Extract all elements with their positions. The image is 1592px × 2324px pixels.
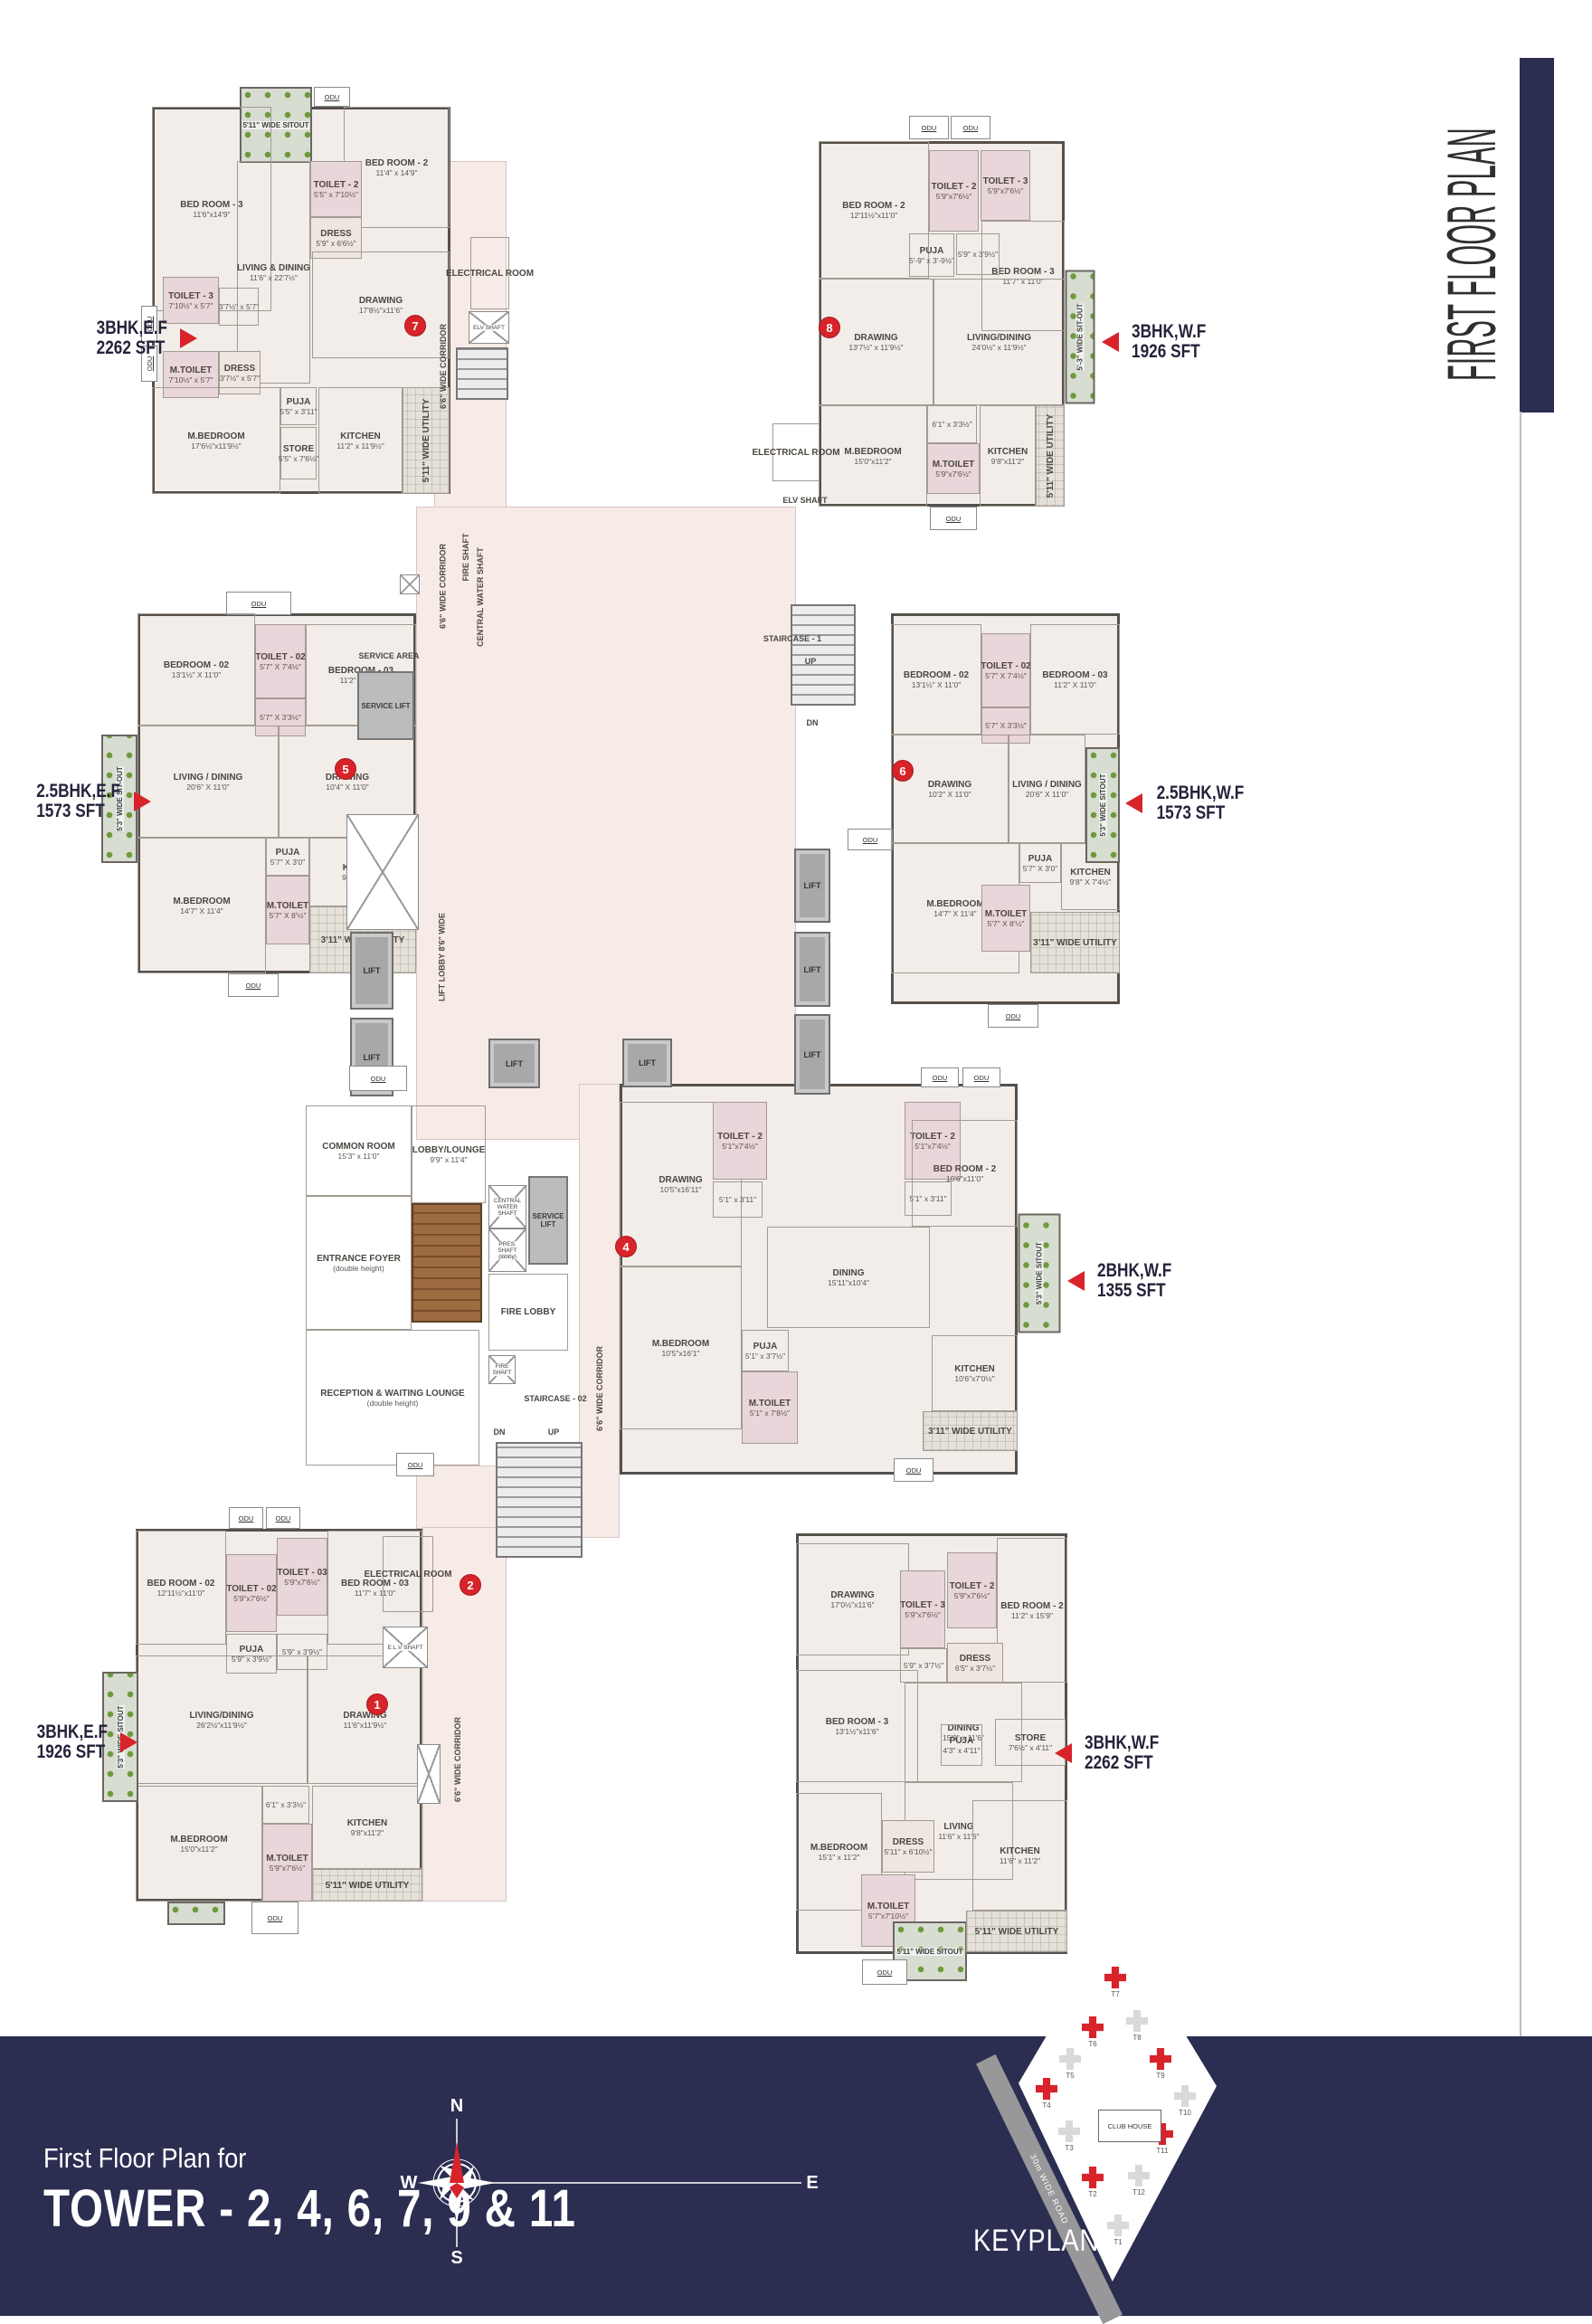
shaft-pres-shaft-lobby: PRES. SHAFT (lobby): [488, 1228, 526, 1272]
odu-odu: ODU: [962, 1067, 1000, 1087]
room-toilet-2: TOILET - 25'1"x7'4½": [713, 1102, 767, 1180]
keyplan-tower-label-t6: T6: [1079, 2040, 1106, 2048]
shaft-area: [400, 574, 420, 594]
unit-arrow-right: [134, 792, 151, 811]
lift-lift: LIFT: [488, 1039, 540, 1088]
unit-arrow-right: [120, 1732, 137, 1752]
shaft-e-l-v-shaft: E.L.V SHAFT: [383, 1627, 428, 1668]
lift-lift: LIFT: [794, 849, 830, 923]
odu-odu: ODU: [951, 116, 990, 139]
keyplan-tower-label-t11: T11: [1149, 2147, 1176, 2155]
tag-3bhk-e-f: 3BHK,E.F1926 SFT: [29, 1722, 101, 1762]
room-drawing: DRAWING13'7½" x 11'9½": [819, 279, 933, 405]
room-living-dining: LIVING/DINING26'2½"x11'9½": [136, 1655, 308, 1784]
unit-arrow-left: [1067, 1271, 1085, 1291]
room-kitchen: KITCHEN11'2" x 11'9½": [318, 387, 403, 494]
stairsg-area: [791, 604, 856, 706]
tag-2-5bhk-w-f: 2.5BHK,W.F1573 SFT: [1125, 783, 1207, 823]
room-6-1-x-3-3: 6'1" x 3'3½": [927, 405, 977, 443]
shaft-fire-shaft: FIRE SHAFT: [488, 1355, 516, 1384]
keyplan-tower-label-t9: T9: [1147, 2072, 1174, 2080]
tag-3bhk-e-f: 3BHK,E.F2262 SFT: [89, 318, 154, 358]
compass-w: W: [401, 2173, 418, 2193]
room-3-11-wide-utility: 3'11" WIDE UTILITY: [923, 1411, 1018, 1451]
lbl-up: UP: [800, 657, 821, 666]
circle-7: 7: [404, 315, 426, 337]
room-toilet-03: TOILET - 035'9"x7'6½": [277, 1538, 327, 1616]
room-living-dining: LIVING/DINING24'0½" x 11'9½": [933, 279, 1065, 405]
room-lobby-lounge: LOBBY/LOUNGE9'9" x 11'4": [412, 1105, 486, 1203]
room-bed-room-2: BED ROOM - 210'6"x11'0": [912, 1120, 1018, 1227]
room-electrical-room: ELECTRICAL ROOM: [772, 423, 820, 481]
room-toilet-2: TOILET - 25'5" x 7'10½": [310, 161, 362, 217]
tag-2bhk-w-f: 2BHK,W.F1355 SFT: [1067, 1263, 1140, 1299]
odu-odu: ODU: [930, 507, 977, 530]
room-puja: PUJA5'1" x 3'7½": [742, 1330, 789, 1371]
room-toilet-02: TOILET - 025'7" X 7'4½": [255, 624, 306, 698]
corridor-area: [416, 507, 796, 1140]
room-m-bedroom: M.BEDROOM14'7" X 11'4": [137, 838, 266, 973]
room-drawing: DRAWING10'2" X 11'0": [891, 735, 1009, 843]
room-m-bedroom: M.BEDROOM15'0"x11'2": [136, 1786, 262, 1902]
room-puja: PUJA5'5" x 3'11": [280, 387, 317, 425]
keyplan-tower-label-t7: T7: [1102, 1990, 1129, 1998]
odu-odu: ODU: [229, 1507, 263, 1529]
room-bed-room-2: BED ROOM - 211'2" x 15'9": [997, 1538, 1067, 1683]
room-toilet-2: TOILET - 25'9"x7'6½": [947, 1552, 997, 1628]
title-band-bar: [1520, 58, 1554, 413]
room-kitchen: KITCHEN9'8"x11'2": [980, 405, 1036, 507]
compass-rose: N W S E: [398, 2099, 823, 2266]
lbl-service-area: SERVICE AREA: [355, 650, 423, 662]
footer-subtitle: First Floor Plan for: [43, 2142, 246, 2175]
lbl-dn: DN: [801, 718, 823, 727]
compass-n: N: [450, 2099, 463, 2116]
odu-odu: ODU: [228, 973, 279, 997]
circle-2: 2: [460, 1574, 481, 1596]
room-kitchen: KITCHEN11'6" x 11'2": [972, 1800, 1067, 1911]
sitout-area: [167, 1902, 225, 1925]
corridor-area: [579, 1084, 620, 1538]
keyplan-tower-label-t10: T10: [1171, 2109, 1199, 2117]
compass-s: S: [450, 2248, 462, 2266]
lbl-6-6-wide-corridor: 6'6" WIDE CORRIDOR: [432, 289, 454, 443]
room-toilet-3: TOILET - 37'10½" x 5'7": [163, 277, 219, 324]
room-toilet-02: TOILET - 025'9"x7'6½": [226, 1554, 277, 1632]
unit-arrow-left: [1055, 1743, 1072, 1763]
servicelift-service-lift: SERVICE LIFT: [357, 671, 414, 740]
room-reception-waiting-lounge: RECEPTION & WAITING LOUNGE(double height…: [306, 1330, 479, 1466]
keyplan-tower-label-t5: T5: [1057, 2072, 1084, 2080]
room-electrical-room: ELECTRICAL ROOM: [383, 1536, 433, 1612]
circle-8: 8: [819, 317, 840, 338]
room-drawing: DRAWING17'0½"x11'6": [796, 1543, 909, 1655]
circle-5: 5: [335, 758, 356, 780]
keyplan-tower-label-t4: T4: [1033, 2101, 1060, 2110]
circle-4: 4: [615, 1236, 637, 1257]
unit-arrow-left: [1125, 793, 1142, 813]
servicelift-service-lift: SERVICE LIFT: [528, 1176, 568, 1265]
room-5-11-wide-utility: 5'11" WIDE UTILITY: [312, 1869, 422, 1902]
lbl-6-6-wide-corridor: 6'6" WIDE CORRIDOR: [590, 1321, 610, 1456]
odu-odu: ODU: [988, 1004, 1038, 1028]
room-m-toilet: M.TOILET5'7" X 8'½": [266, 876, 309, 944]
room-entrance-foyer: ENTRANCE FOYER(double height): [306, 1196, 412, 1330]
room-drawing: DRAWING17'8½"x11'6": [312, 251, 450, 358]
room-kitchen: KITCHEN9'8"x11'2": [312, 1786, 422, 1869]
room-drawing: DRAWING11'6"x11'9½": [308, 1655, 422, 1784]
room-puja: PUJA5'7" X 3'0": [266, 838, 309, 876]
odu-odu: ODU: [349, 1066, 407, 1091]
odu-odu: ODU: [921, 1067, 959, 1087]
odu-odu: ODU: [909, 116, 949, 139]
lbl-up: UP: [543, 1428, 564, 1437]
room-dining: DINING15'11"x10'4": [767, 1227, 930, 1328]
odu-odu: ODU: [266, 1507, 300, 1529]
keyplan-tower-label-t8: T8: [1123, 2034, 1151, 2042]
lift-lift: LIFT: [622, 1039, 672, 1087]
lbl-central-water-shaft: CENTRAL WATER SHAFT: [474, 561, 487, 633]
lift-lift: LIFT: [350, 932, 393, 1010]
keyplan-tower-label-t2: T2: [1079, 2190, 1106, 2198]
room-common-room: COMMON ROOM15'3" x 11'0": [306, 1105, 412, 1196]
room-toilet-02: TOILET - 025'7" X 7'4½": [981, 633, 1030, 707]
room-store: STORE5'5" x 7'6½": [280, 427, 317, 479]
room-toilet-2: TOILET - 25'9"x7'6½": [929, 150, 979, 232]
shaft-central-water-shaft: CENTRAL WATER SHAFT: [488, 1185, 526, 1228]
odu-odu: ODU: [894, 1458, 933, 1482]
room-dress: DRESS6'5" x 3'7½": [947, 1643, 1003, 1683]
room-toilet-3: TOILET - 35'9"x7'6½": [900, 1570, 945, 1648]
room-toilet-3: TOILET - 35'9"x7'6½": [981, 150, 1030, 221]
room-kitchen: KITCHEN10'6"x7'0½": [932, 1335, 1018, 1411]
compass-e: E: [806, 2173, 818, 2193]
lbl-6-6-wide-corridor: 6'6" WIDE CORRIDOR: [449, 1701, 467, 1818]
room-5-1-x-3-11: 5'1" x 3'11": [713, 1181, 763, 1218]
room-m-toilet: M.TOILET5'9"x7'6½": [262, 1824, 312, 1902]
sitout-5-3-wide-sitout: 5'3" WIDE SITOUT: [1085, 747, 1120, 863]
room-bed-room-02: BED ROOM - 0212'11½"x11'0": [136, 1531, 226, 1645]
lbl-staircase-02: STAIRCASE - 02: [519, 1393, 592, 1404]
room-3-7-x-5-7: 3'7½" x 5'7": [219, 288, 259, 326]
keyplan-club-house: CLUB HOUSE: [1098, 2110, 1161, 2142]
room-m-bedroom: M.BEDROOM17'6½"x11'9½": [152, 387, 280, 494]
shaft-area: [346, 814, 419, 930]
lbl-6-6-wide-corridor: 6'6" WIDE CORRIDOR: [433, 529, 451, 642]
room-bed-room-3: BED ROOM - 313'1½"x11'6": [796, 1670, 918, 1782]
odu-odu: ODU: [251, 1902, 298, 1934]
room-m-toilet: M.TOILET5'7" X 8'½": [981, 885, 1030, 952]
room-bedroom-03: BEDROOM - 0311'2" X 11'0": [1030, 624, 1120, 735]
room-dress: DRESS5'11" x 6'10½": [882, 1820, 934, 1873]
tag-3bhk-w-f: 3BHK,W.F1926 SFT: [1102, 322, 1176, 362]
stairsg-area: [496, 1442, 583, 1558]
room-puja: PUJA5'-9" x 3'-9½": [909, 233, 954, 277]
unit-arrow-right: [180, 328, 197, 348]
page-title-vertical: FIRST FLOOR PLAN: [1436, 122, 1508, 387]
keyplan-tower-label-t3: T3: [1056, 2144, 1083, 2152]
lbl-dn: DN: [488, 1428, 510, 1437]
right-separator-line: [1520, 412, 1521, 2036]
room-m-toilet: M.TOILET5'1" x 7'8½": [742, 1371, 798, 1444]
room-bedroom-02: BEDROOM - 0213'1½" X 11'0": [137, 613, 255, 726]
room-living-dining: LIVING / DINING20'6" X 11'0": [1009, 735, 1085, 843]
shaft-area: [417, 1744, 441, 1804]
room-bedroom-02: BEDROOM - 0213'1½" X 11'0": [891, 624, 981, 735]
room-puja: PUJA5'7" X 3'0": [1019, 843, 1061, 883]
stairsg-area: [456, 347, 508, 400]
keyplan-title: KEYPLAN: [973, 2224, 1099, 2259]
odu-odu: ODU: [862, 1959, 907, 1985]
room-living-dining: LIVING / DINING20'6" X 11'0": [137, 726, 279, 838]
room-3-11-wide-utility: 3'11" WIDE UTILITY: [1030, 912, 1120, 973]
room-fire-lobby: FIRE LOBBY: [488, 1274, 568, 1351]
room-m-toilet: M.TOILET5'9"x7'6½": [927, 443, 980, 494]
room-m-bedroom: M.BEDROOM10'5"x16'1": [620, 1266, 742, 1429]
room-puja: PUJA4'3" x 4'11": [941, 1724, 982, 1766]
lbl-lift-lobby-8-6-wide: LIFT LOBBY 8'6" WIDE: [432, 900, 450, 1013]
room-electrical-room: ELECTRICAL ROOM: [470, 237, 509, 309]
circle-1: 1: [366, 1693, 388, 1715]
odu-odu: ODU: [314, 87, 350, 107]
room-5-11-wide-utility: 5'11" WIDE UTILITY: [1036, 405, 1065, 507]
circle-6: 6: [892, 760, 914, 782]
odu-odu: ODU: [226, 592, 291, 615]
room-6-1-x-3-3: 6'1" x 3'3½": [262, 1786, 309, 1824]
odu-odu: ODU: [848, 829, 893, 850]
room-5-9-x-3-9: 5'9" x 3'9½": [956, 233, 1000, 275]
stairsb-area: [412, 1203, 482, 1323]
lbl-fire-shaft: FIRE SHAFT: [460, 532, 472, 583]
lbl-staircase-1: STAIRCASE - 1: [756, 633, 829, 644]
lift-lift: LIFT: [794, 1014, 830, 1095]
sitout-5-3-wide-sit-out: 5'-3" WIDE SIT-OUT: [1065, 270, 1094, 403]
lift-lift: LIFT: [794, 932, 830, 1007]
shaft-elv-shaft: ELV SHAFT: [469, 311, 509, 344]
odu-odu: ODU: [396, 1453, 434, 1476]
keyplan-tower-label-t1: T1: [1104, 2238, 1132, 2246]
lbl-elv-shaft: ELV SHAFT: [780, 494, 830, 507]
tag-3bhk-w-f: 3BHK,W.F2262 SFT: [1055, 1733, 1129, 1773]
room-5-11-wide-utility: 5'11" WIDE UTILITY: [966, 1911, 1067, 1952]
tag-2-5bhk-e-f: 2.5BHK,E.F1573 SFT: [27, 782, 105, 821]
sitout-5-3-wide-sitout: 5'3" WIDE SITOUT: [1018, 1213, 1060, 1333]
unit-arrow-left: [1102, 332, 1119, 352]
keyplan-tower-label-t12: T12: [1125, 2188, 1152, 2196]
